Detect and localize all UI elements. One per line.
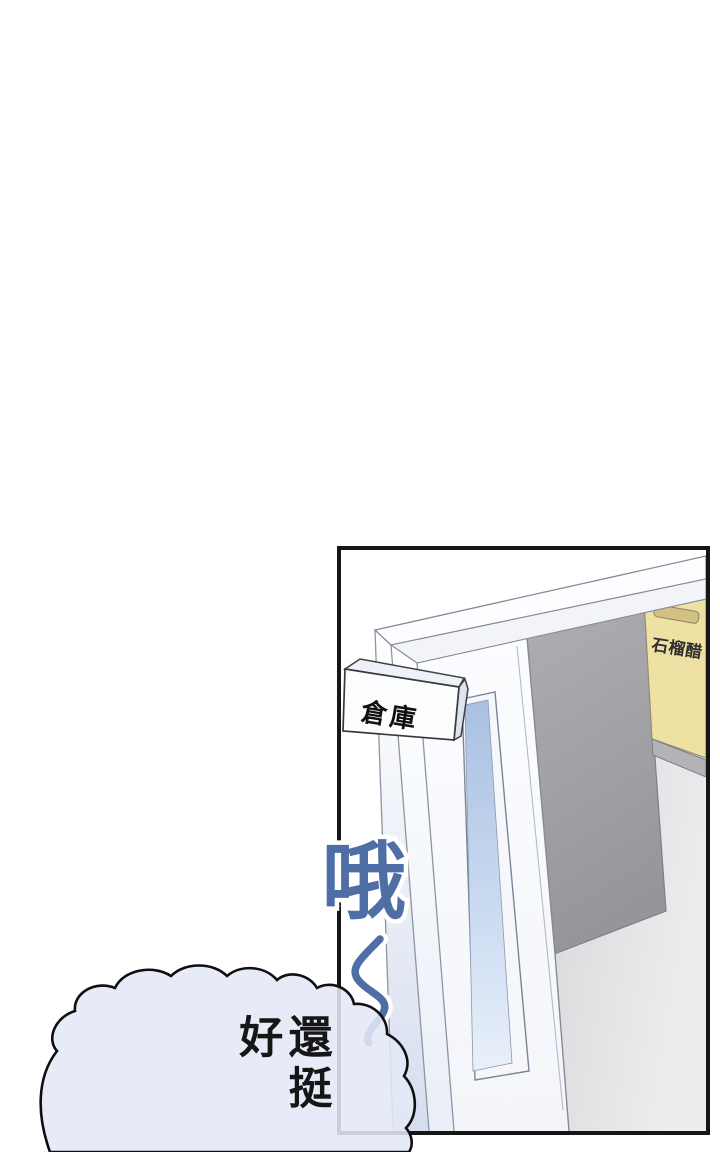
speech-bubble [0,956,440,1152]
speech-bubble-shape [41,966,415,1152]
speech-bubble-text: 還挺好 [232,1014,331,1152]
webtoon-page: 石榴醋 [0,0,720,1152]
sfx-oh-text: 哦 [322,840,406,924]
